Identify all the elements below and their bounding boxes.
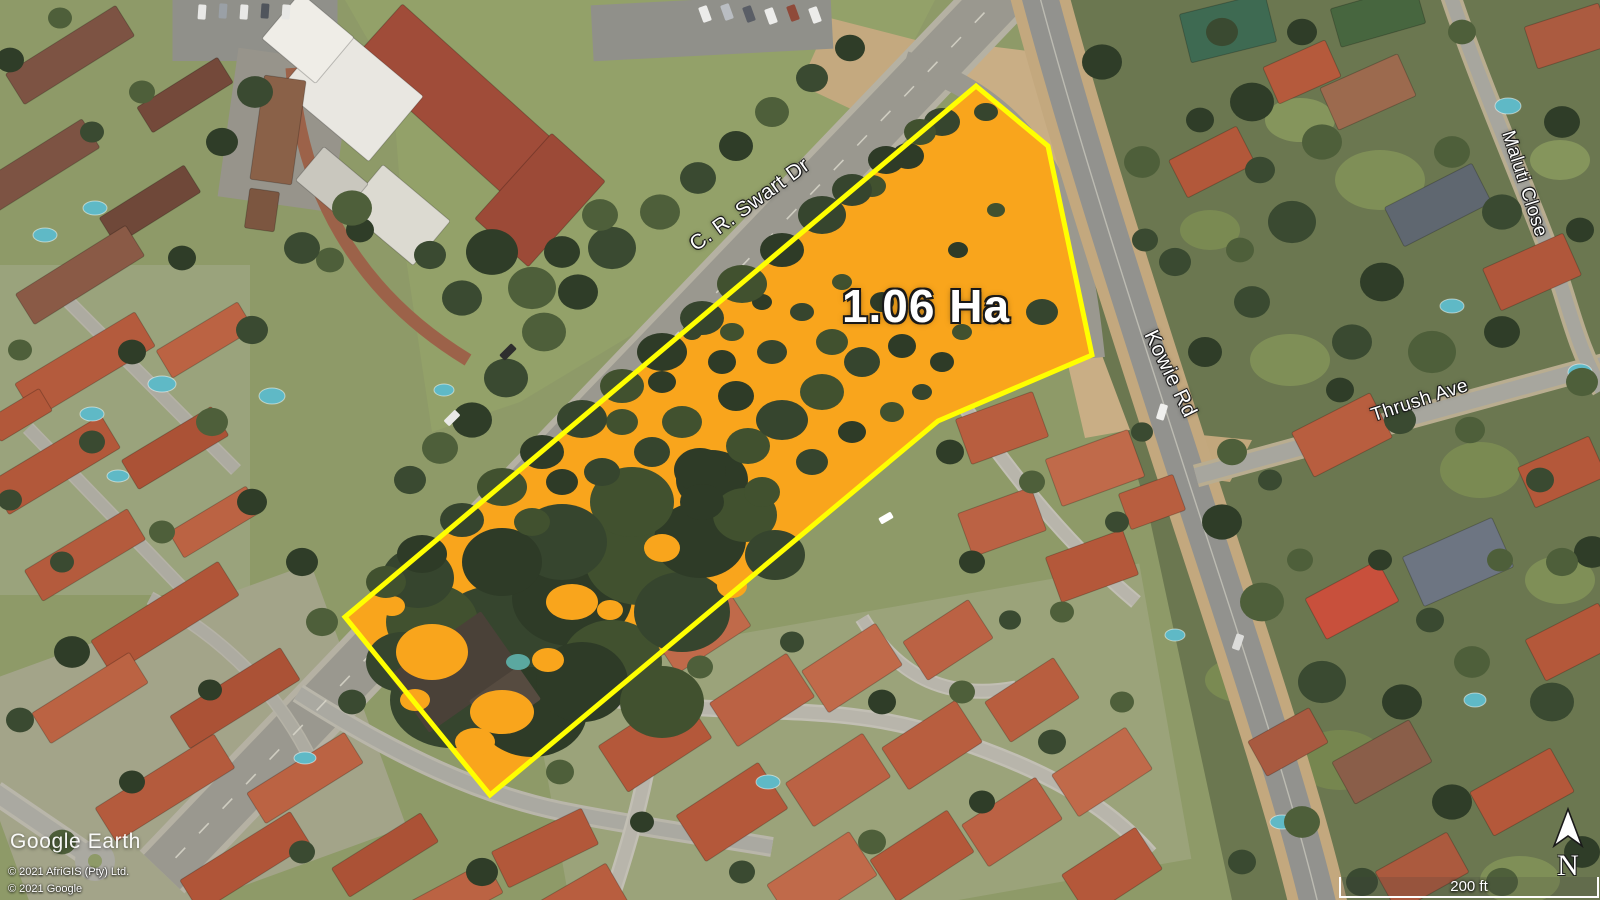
north-arrow-icon: [1546, 806, 1590, 848]
attribution-afrigis: © 2021 AfriGIS (Pty) Ltd.: [8, 866, 129, 878]
scale-bar: 200 ft: [1339, 877, 1599, 898]
scale-bar-label: 200 ft: [1450, 878, 1488, 895]
compass-control[interactable]: N: [1546, 806, 1590, 876]
attribution-google: © 2021 Google: [8, 883, 82, 895]
google-earth-viewport[interactable]: C. R. Swart Dr Kowie Rd Thrush Ave Malut…: [0, 0, 1600, 900]
parcel-area-label: 1.06 Ha: [842, 279, 1010, 333]
google-earth-logo: Google Earth: [10, 830, 141, 854]
north-label: N: [1546, 853, 1590, 879]
aerial-imagery: [0, 0, 1600, 900]
